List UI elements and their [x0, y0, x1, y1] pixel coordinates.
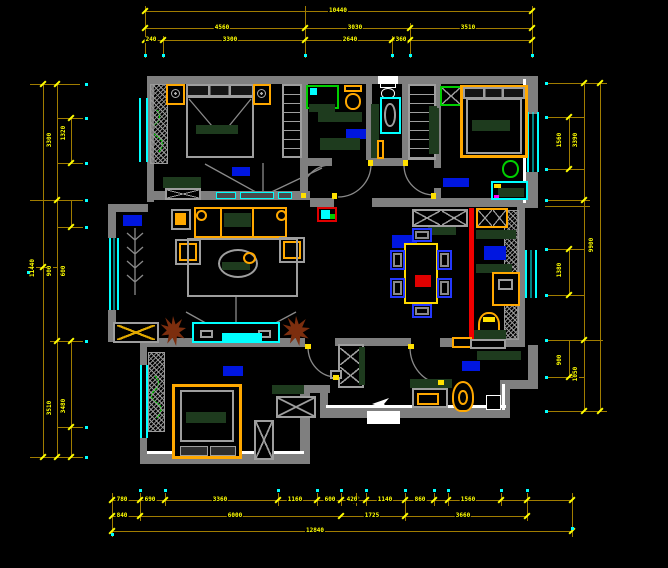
dimension-label: 860 — [414, 497, 427, 503]
dimension-label: 1160 — [287, 497, 303, 503]
dimension-label: 1320 — [61, 125, 67, 141]
dimension-label: 900 — [47, 265, 53, 278]
dimension-endpoint-dot — [545, 168, 548, 171]
dimension-endpoint-dot — [277, 489, 280, 492]
bedroom2-chair — [502, 160, 519, 178]
dimension-label: 3510 — [460, 25, 476, 31]
dimension-extension-line — [532, 6, 533, 58]
bath2-door — [377, 140, 384, 159]
dimension-line — [545, 117, 584, 118]
kitchen-label — [484, 246, 506, 260]
dimension-endpoint-dot — [447, 489, 450, 492]
dimension-endpoint-dot — [304, 54, 307, 57]
dimension-extension-line — [71, 118, 72, 163]
bay-top-wall — [108, 204, 148, 212]
dimension-line — [545, 249, 584, 250]
floorplan-canvas: 1044045603030351024033002640360780690336… — [0, 0, 668, 568]
bath1-counter — [320, 138, 360, 150]
dimension-endpoint-dot — [85, 226, 88, 229]
dimension-extension-line — [71, 341, 72, 457]
dimension-label: 600 — [324, 497, 337, 503]
dimension-extension-line — [569, 340, 570, 377]
entry-counter — [470, 339, 506, 349]
bedroom3-label — [223, 366, 243, 376]
water-heater — [452, 337, 472, 348]
nightstand-a-lamp — [171, 89, 180, 98]
dimension-label: 240 — [145, 37, 158, 43]
dimension-label: 3510 — [47, 400, 53, 416]
entry-bottom-wall — [320, 408, 510, 418]
dimension-endpoint-dot — [545, 294, 548, 297]
dining-table — [404, 243, 438, 304]
stove-top — [498, 279, 513, 290]
dimension-label: 690 — [144, 497, 157, 503]
dimension-endpoint-dot — [526, 489, 529, 492]
mirror-shelf — [428, 227, 456, 235]
dimension-endpoint-dot — [365, 489, 368, 492]
bay-window — [109, 238, 119, 310]
entry-switch — [486, 395, 501, 410]
hinge-g — [305, 344, 311, 349]
bedroom1-label — [232, 167, 250, 176]
dimension-endpoint-dot — [340, 489, 343, 492]
hall-door-arc — [338, 164, 371, 197]
dimension-label: 3300 — [47, 132, 53, 148]
dimension-endpoint-dot — [531, 54, 534, 57]
dimension-label: 3030 — [347, 25, 363, 31]
dimension-endpoint-dot — [545, 199, 548, 202]
dimension-label: 4560 — [214, 25, 230, 31]
dimension-extension-line — [145, 6, 146, 58]
dimension-endpoint-dot — [545, 116, 548, 119]
dimension-label: 1560 — [557, 132, 563, 148]
kitchen-window — [525, 250, 537, 298]
dimension-label: 3300 — [222, 37, 238, 43]
dimension-label: 2640 — [342, 37, 358, 43]
dimension-endpoint-dot — [316, 489, 319, 492]
dimension-label: 780 — [116, 497, 129, 503]
dimension-label: 420 — [346, 497, 359, 503]
bath1-shelf — [318, 112, 362, 122]
plan-note-box — [367, 411, 400, 424]
dimension-label: 3360 — [212, 497, 228, 503]
dimension-label: 6000 — [227, 513, 243, 519]
dimension-label: 9900 — [589, 237, 595, 253]
dimension-label: 11440 — [30, 258, 36, 278]
art-accent — [330, 214, 335, 219]
dimension-extension-line — [305, 6, 306, 58]
dimension-endpoint-dot — [85, 456, 88, 459]
art-content — [321, 210, 330, 219]
entry-shelf-a — [477, 351, 521, 360]
entry-closet-shelf — [359, 347, 365, 385]
bedroom2-label — [443, 178, 469, 187]
dimension-endpoint-dot — [545, 339, 548, 342]
bedroom1-bench — [163, 177, 201, 188]
dimension-endpoint-dot — [111, 533, 114, 536]
bedroom3-closet-hatch — [148, 352, 165, 432]
dimension-endpoint-dot — [571, 527, 574, 530]
coat-rack-icon — [127, 228, 143, 295]
dimension-endpoint-dot — [85, 162, 88, 165]
dimension-endpoint-dot — [409, 54, 412, 57]
bedroom3-shelf — [272, 385, 304, 394]
dimension-label: 360 — [395, 37, 408, 43]
dimension-extension-line — [600, 83, 601, 411]
dimension-endpoint-dot — [162, 54, 165, 57]
sofa-divider-a — [220, 209, 222, 236]
dimension-endpoint-dot — [144, 54, 147, 57]
dimension-endpoint-dot — [164, 489, 167, 492]
bedroom1-bench-table — [165, 188, 201, 200]
entry-right-wall — [528, 345, 538, 387]
kitchen-shelf-c — [474, 330, 506, 339]
dimension-endpoint-dot — [433, 489, 436, 492]
shower-shelf — [309, 104, 335, 112]
kitchen-cabinet-xb — [493, 210, 506, 226]
dining-chair-w1 — [390, 250, 405, 270]
dimension-label: 600 — [61, 265, 67, 278]
sliding-door-c — [278, 192, 292, 199]
bedroom3-window — [140, 365, 148, 438]
dining-chair-w2 — [390, 278, 405, 298]
bedroom2-window — [527, 112, 539, 172]
dimension-extension-line — [584, 83, 585, 411]
dimension-label: 900 — [557, 354, 563, 367]
dimension-line — [112, 531, 572, 532]
bay-cap-top — [108, 212, 116, 238]
dining-chair-e2 — [437, 278, 452, 298]
nightstand-b-lamp — [257, 89, 266, 98]
dimension-label: 1380 — [557, 262, 563, 278]
entry-closet-xb — [340, 367, 361, 384]
bedroom2-desk-item2 — [494, 195, 499, 198]
dimension-endpoint-dot — [391, 54, 394, 57]
sofa-armrest-a — [196, 210, 207, 221]
dimension-label: 1140 — [377, 497, 393, 503]
dimension-extension-line — [43, 84, 44, 458]
dimension-endpoint-dot — [85, 117, 88, 120]
mirror-x-b — [442, 211, 466, 225]
shower-head — [310, 88, 317, 95]
hinge-b — [368, 160, 373, 166]
dimension-line — [145, 40, 532, 41]
entry-step-trim — [502, 384, 505, 410]
bedroom2-desk-item — [494, 184, 501, 188]
sofa-cushion — [224, 213, 251, 227]
dimension-label: 1560 — [460, 497, 476, 503]
dimension-endpoint-dot — [545, 410, 548, 413]
bed2-pillow — [472, 120, 510, 131]
dimension-endpoint-dot — [545, 82, 548, 85]
dining-chair-s — [412, 304, 432, 318]
toilet1-bowl — [345, 93, 361, 110]
dimension-endpoint-dot — [85, 426, 88, 429]
ceiling-fan-blades — [442, 88, 460, 104]
dimension-endpoint-dot — [85, 199, 88, 202]
bedroom3-closet-a — [276, 396, 316, 418]
hinge-c — [403, 160, 408, 166]
bedroom3-left-wall-a — [140, 346, 147, 366]
entry-mirror — [417, 393, 439, 405]
sofa-divider-b — [252, 209, 254, 236]
bedroom2-desk-top — [498, 188, 524, 197]
bedroom1-wardrobe — [282, 84, 302, 158]
kitchen-wall-line — [469, 208, 474, 345]
dimension-endpoint-dot — [545, 248, 548, 251]
dimension-endpoint-dot — [500, 489, 503, 492]
dimension-line — [545, 295, 584, 296]
bath2-basin — [384, 103, 396, 127]
dining-table-center — [415, 275, 431, 287]
entry-door-arc — [410, 347, 441, 383]
sofa-armrest-b — [276, 210, 287, 221]
hinge-a — [332, 193, 337, 199]
dimension-extension-line — [569, 117, 570, 169]
dimension-label: 1725 — [364, 513, 380, 519]
bedroom1-window — [139, 98, 148, 162]
mirror-x-a — [414, 211, 440, 225]
hinge-i — [301, 193, 306, 198]
bed3-drawer-a — [180, 446, 208, 456]
hinge-f — [438, 380, 444, 385]
bath-bottom-wall-a — [302, 158, 332, 166]
bedroom2-door-arc — [404, 165, 434, 195]
dimension-label: 3390 — [573, 132, 579, 148]
sliding-door-a — [216, 192, 236, 199]
dining-chair-n — [412, 228, 432, 242]
dimension-endpoint-dot — [404, 489, 407, 492]
kettle-handle — [483, 317, 495, 322]
dimension-label: 840 — [116, 513, 129, 519]
dimension-extension-line — [57, 84, 58, 458]
dimension-label: 1050 — [573, 366, 579, 382]
tv-speaker-a — [200, 330, 213, 338]
dimension-line — [545, 340, 603, 341]
hinge-d — [431, 193, 436, 199]
dimension-label: 3480 — [61, 398, 67, 414]
bay-cabinet-x — [117, 325, 155, 340]
kitchen-shelf-a — [476, 230, 516, 239]
hall-south-wall-a — [310, 198, 334, 207]
bath-bottom-wall-b — [370, 158, 404, 166]
entry-label — [462, 361, 480, 371]
dimension-label: 10440 — [328, 8, 348, 14]
hinge-e — [408, 344, 414, 349]
entry-bench — [410, 379, 452, 388]
kitchen-cabinet-xa — [478, 210, 492, 226]
bed3-drawer-b — [210, 446, 236, 456]
dimension-extension-line — [569, 249, 570, 295]
dining-chair-e1 — [437, 250, 452, 270]
sliding-door-b — [240, 192, 274, 199]
side-table-tray — [175, 213, 186, 225]
coffee-table-bowl — [243, 252, 256, 264]
dimension-endpoint-dot — [139, 489, 142, 492]
top-wall — [147, 76, 538, 84]
living-label — [123, 215, 142, 226]
dimension-label: 12840 — [305, 528, 325, 534]
bed3-pillow — [186, 412, 226, 423]
bedroom2-wardrobe — [430, 108, 439, 154]
bedroom3-closet-b — [254, 420, 274, 460]
toilet1-tank — [344, 85, 362, 92]
dimension-endpoint-dot — [85, 83, 88, 86]
dimension-label: 3660 — [455, 513, 471, 519]
entry-closet-xa — [340, 348, 361, 365]
dimension-line — [545, 169, 584, 170]
dimension-endpoint-dot — [545, 376, 548, 379]
dimension-endpoint-dot — [85, 340, 88, 343]
hinge-h — [333, 375, 339, 380]
tv-screen — [222, 333, 262, 342]
entry-vase-inner — [458, 390, 468, 405]
bed1-pillow — [196, 125, 238, 134]
